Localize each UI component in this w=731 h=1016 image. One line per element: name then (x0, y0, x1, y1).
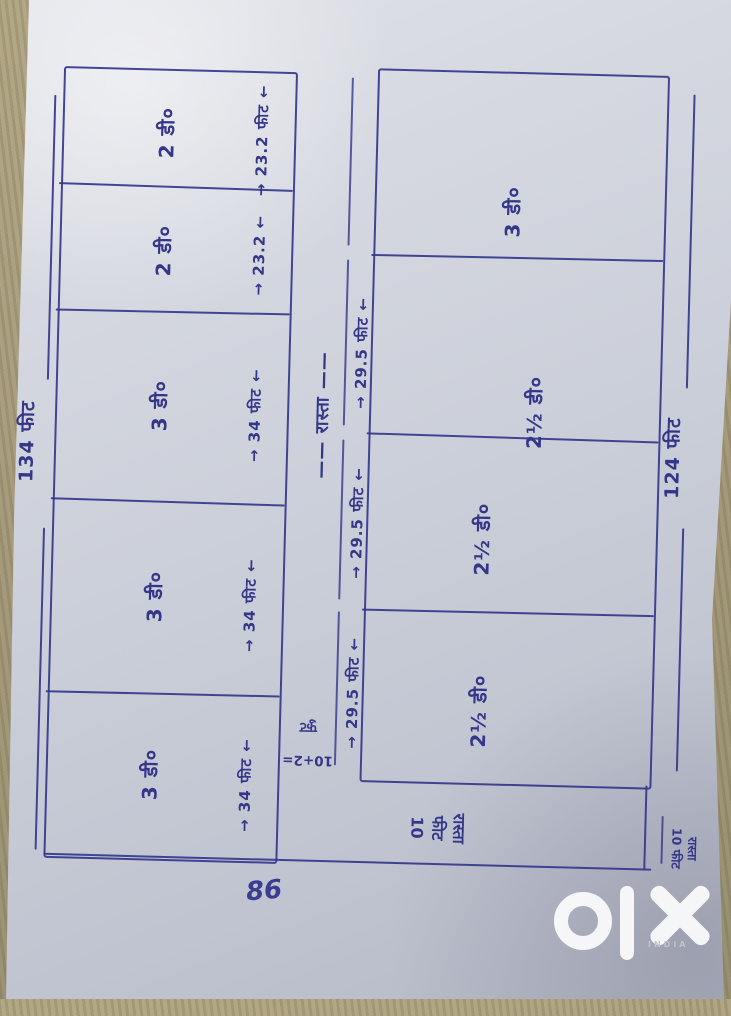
dimension-line-right-1 (348, 78, 355, 246)
plot-dimension: → 34 फीट ← (244, 368, 266, 462)
corner-road-col-rasta: रास्ता (685, 837, 701, 861)
plot-dimension: → 23.2 ← (249, 215, 269, 296)
plot-label: 2½ डी० (467, 502, 496, 576)
bottom-road-col-rasta: रास्ता (449, 813, 469, 844)
plot-dimension: → 23.2 फीट ← (251, 84, 274, 196)
corner-road-label: रास्ता 10 फीट (667, 828, 701, 870)
olx-o-icon (554, 892, 612, 950)
plot-label: 3 डी० (140, 571, 168, 623)
dimension-label-124: 124 फीट (658, 417, 686, 499)
dimension-line-134-top (47, 95, 57, 380)
dimension-label-134: 134 फीट (12, 400, 40, 482)
bottom-road-col-10: 10 (408, 816, 428, 839)
plot-label: 2 डी० (149, 225, 177, 277)
plot-label: 2 डी० (152, 107, 180, 159)
road-width-note-line1: 10+2= (282, 751, 333, 768)
bottom-road-label: रास्ता फीट 10 (406, 812, 469, 844)
plot-label: 3 डी० (498, 186, 526, 238)
dimension-line-right-3 (338, 439, 345, 599)
plot-sketch: 134 फीट 2 डी० 2 डी० 3 डी० 3 डी० 3 डी० → … (0, 0, 731, 1016)
corner-road-col-10ft: 10 फीट (668, 828, 684, 869)
corner-road-tick (660, 816, 664, 864)
plot-label: 2½ डी० (464, 674, 493, 748)
photo-of-plot-sketch: { "colors": { "ink": "#373a8c", "paper":… (0, 0, 731, 999)
dimension-line-124-top (686, 95, 696, 389)
right-plot-block (359, 68, 670, 789)
road-width-note-line2: फुट (300, 719, 318, 735)
olx-watermark: INDIA (540, 880, 720, 970)
bottom-boundary-line (43, 853, 651, 871)
middle-road-label: —— रास्ता —— (308, 351, 335, 479)
plot-dimension: → 34 फीट ← (239, 558, 261, 652)
plot-label: 3 डी० (135, 749, 163, 801)
plot-label: 3 डी० (145, 380, 173, 432)
plot-dimension: → 34 फीट ← (234, 738, 256, 832)
plot-label: 2½ डी० (520, 376, 549, 450)
bottom-road-right-edge (643, 786, 648, 871)
dimension-line-134-bottom (35, 528, 46, 850)
page-number: 86 (245, 874, 284, 907)
dimension-line-right-2 (343, 260, 350, 426)
dimension-line-124-bottom (676, 528, 685, 771)
olx-india-text: INDIA (648, 940, 688, 949)
olx-l-icon (620, 886, 634, 960)
bottom-road-col-feet: फीट (428, 816, 448, 841)
